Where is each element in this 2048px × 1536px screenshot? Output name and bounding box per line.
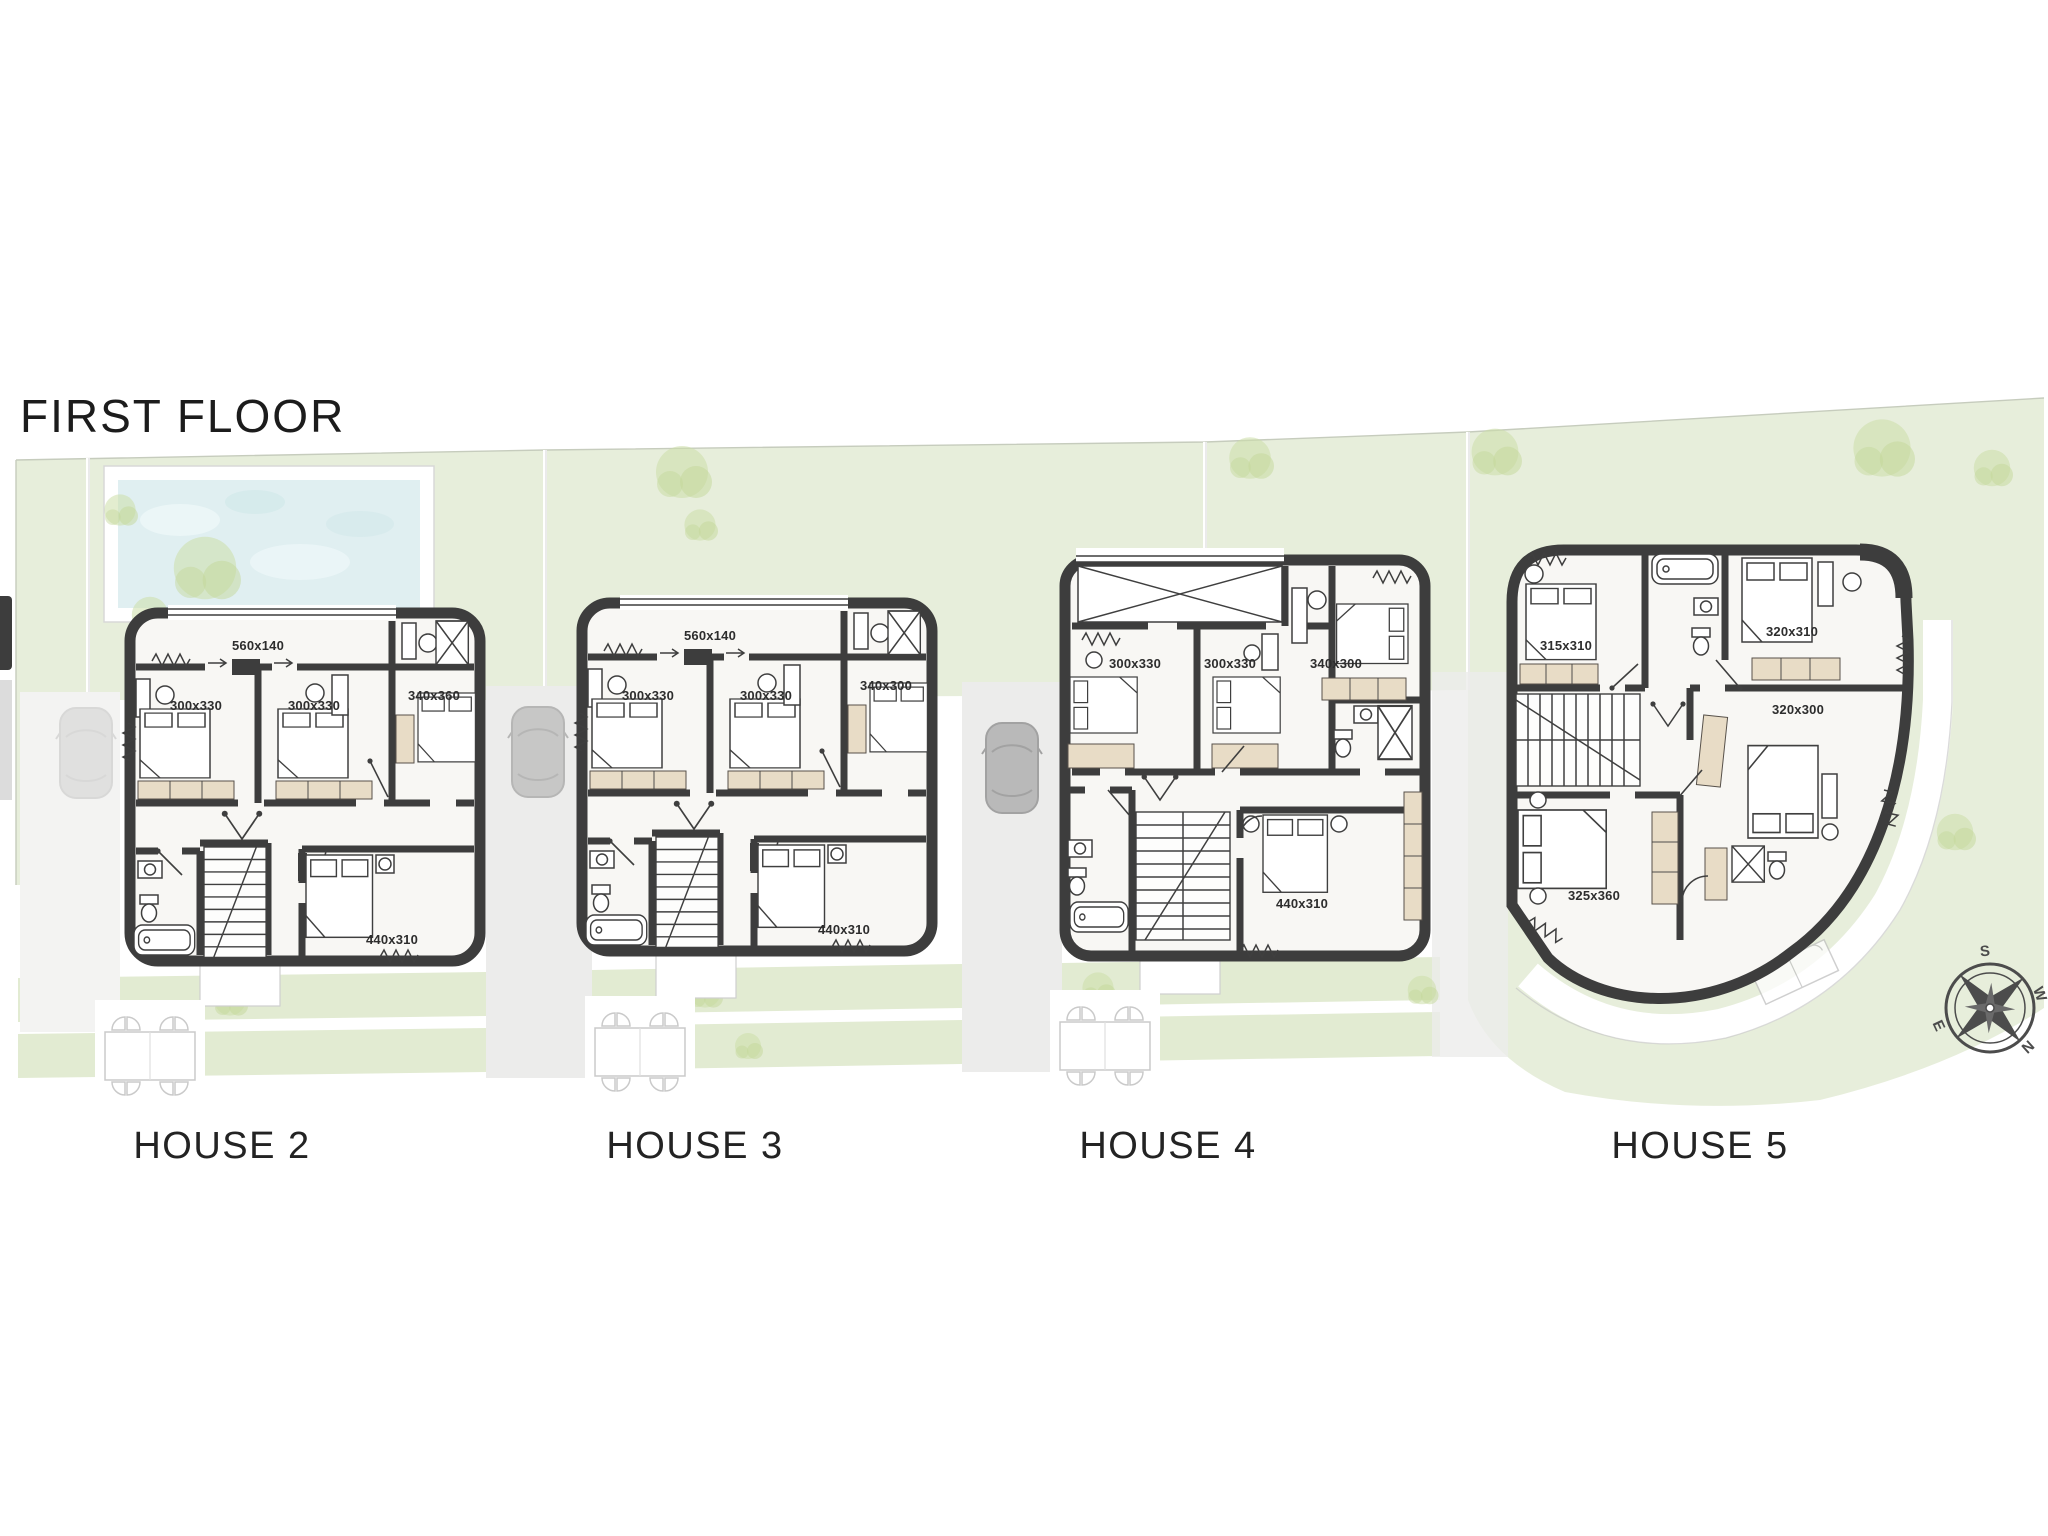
house-3-plan: 560x140 300x330 300x330 340x300 440x310	[575, 595, 932, 952]
house5-bedroom1-dim: 315x310	[1540, 638, 1592, 653]
house3-balcony-dim: 560x140	[684, 628, 736, 643]
house5-bedroom3-dim: 320x300	[1772, 702, 1824, 717]
house-3-label: HOUSE 3	[606, 1125, 783, 1167]
house3-master-dim: 440x310	[818, 922, 870, 937]
house-4-label: HOUSE 4	[1079, 1125, 1256, 1167]
neighbour-house-fragment	[0, 596, 12, 800]
house-5-label: HOUSE 5	[1611, 1125, 1788, 1167]
house-4-plan: 300x330 300x330 340x300 440x310	[1065, 548, 1425, 957]
house4-bedroom2-dim: 300x330	[1204, 656, 1256, 671]
house4-bedroom3-dim: 340x300	[1310, 656, 1362, 671]
house-2-label: HOUSE 2	[133, 1125, 310, 1167]
house2-bedroom1-dim: 300x330	[170, 698, 222, 713]
house5-master-dim: 325x360	[1568, 888, 1620, 903]
floor-plan-sheet: 560x140 300x330 300x330 340x360 440x310 …	[0, 0, 2048, 1536]
house3-bedroom1-dim: 300x330	[622, 688, 674, 703]
house2-master-dim: 440x310	[366, 932, 418, 947]
site-plan: 560x140 300x330 300x330 340x360 440x310 …	[0, 0, 2048, 1536]
house4-master-dim: 440x310	[1276, 896, 1328, 911]
house2-balcony-dim: 560x140	[232, 638, 284, 653]
house4-bedroom1-dim: 300x330	[1109, 656, 1161, 671]
house2-bedroom3-dim: 340x360	[408, 688, 460, 703]
house-2-plan: 560x140 300x330 300x330 340x360 440x310	[123, 605, 480, 962]
house5-bedroom2-dim: 320x310	[1766, 624, 1818, 639]
house3-bedroom3-dim: 340x300	[860, 678, 912, 693]
staircase-icon	[1516, 694, 1640, 786]
compass-south: S	[1979, 943, 1990, 961]
house2-bedroom2-dim: 300x330	[288, 698, 340, 713]
staircase-icon	[1136, 812, 1230, 940]
page-title: FIRST FLOOR	[20, 390, 345, 442]
house3-bedroom2-dim: 300x330	[740, 688, 792, 703]
